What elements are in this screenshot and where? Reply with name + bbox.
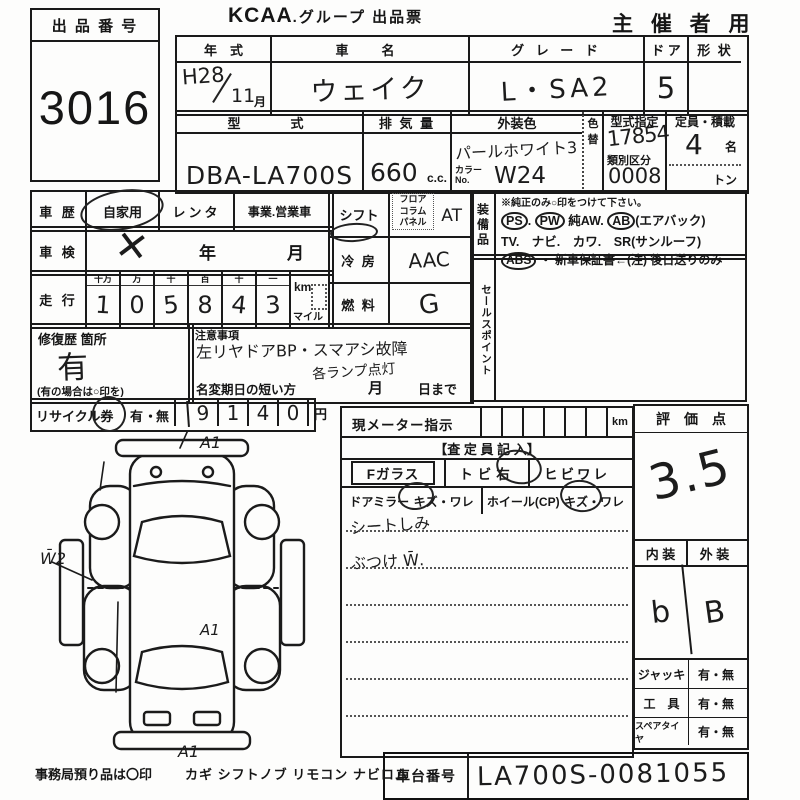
notes-line2: 各ランプ点灯 — [311, 358, 396, 384]
salespoint-box: セールスポイント — [470, 254, 747, 402]
meter-digit-box — [543, 408, 564, 436]
spare-tire-label: スペアタイヤ — [635, 718, 689, 745]
vehicle-table-band2: 型 式 DBA-LA700S 排 気 量 660 c.c. 外装色 パールホワイ… — [175, 110, 749, 194]
tool-label: 工 具 — [635, 689, 689, 717]
car-diagram — [25, 430, 335, 760]
recycle-unit: 円 — [307, 400, 332, 426]
hand-stroke-1 — [116, 602, 118, 692]
car-name-value: ウェイク — [271, 60, 469, 116]
mileage-digit: 4 — [221, 284, 257, 325]
equipment-ps-dot: . — [528, 214, 531, 228]
equipment-ps: PS — [501, 212, 528, 230]
rename-month-unit: 月 — [368, 377, 383, 398]
dotted-writing-line — [346, 678, 628, 680]
meter-digit-box — [522, 408, 543, 436]
capacity-divider — [669, 164, 741, 166]
shift-value: AT — [441, 206, 462, 226]
lot-number-value: 3016 — [32, 42, 158, 172]
year-month-unit: 月 — [254, 93, 266, 110]
color-no-label: カラーNo. — [455, 166, 483, 186]
mileage-label: 走 行 — [32, 272, 87, 327]
recycle-yes: 有 — [130, 406, 143, 425]
accessories-box: ジャッキ 有・無 工 具 有・無 スペアタイヤ 有・無 — [633, 658, 749, 750]
lot-number-label: 出 品 番 号 — [32, 10, 158, 42]
door-value: 5 — [645, 63, 687, 112]
form-title-text: .グループ 出品票 — [293, 9, 423, 26]
right-sill-panel — [281, 540, 304, 645]
fuel-label: 燃 料 — [330, 284, 390, 325]
mileage-digit: 1 — [86, 285, 121, 325]
name-header: 車 名 — [272, 37, 468, 63]
diagram-annotation-front: A1 — [200, 433, 221, 452]
recycle-row: リサイクル券 有 ・ 無 9 1 4 0 円 — [30, 398, 316, 432]
model-value: DBA-LA700S — [177, 134, 362, 193]
notes-box: 注意事項 左リヤドアBP・スマアシ故障 各ランプ点灯 名変期日の短い方 月 日ま… — [188, 323, 474, 404]
vehicle-table-band1: 年 式 H28 11 月 車 名 ウェイク グ レ ー ド L・SA2 ド ア … — [175, 35, 749, 116]
mileage-digit: 8 — [189, 286, 221, 324]
auction-sheet: 出 品 番 号 3016 KCAA.グループ 出品票 主 催 者 用 年 式 H… — [0, 0, 800, 800]
displacement-cell: 660 c.c. — [364, 134, 450, 190]
mileage-unit-mile: マイル — [293, 308, 323, 323]
shift-option-column: コラム — [393, 206, 433, 218]
spare-tire-value: 有・無 — [689, 718, 743, 745]
mileage-row: 走 行 十万 1 万 0 千 5 百 8 十 4 一 3 km マイル — [30, 270, 334, 329]
mileage-unit-checkbox — [311, 284, 327, 310]
tool-value: 有・無 — [689, 689, 743, 717]
digit-header: 十万 — [87, 272, 119, 286]
mileage-digit: 0 — [121, 286, 153, 324]
equipment-pw: PW — [535, 212, 565, 230]
mileage-digit: 5 — [153, 284, 189, 325]
door-header: ド ア — [645, 37, 687, 63]
equipment-box: 装備品 ※純正のみ○印をつけて下さい。 PS. PW 純AW. AB(エアバック… — [470, 190, 747, 260]
equipment-line1: PS. PW 純AW. AB(エアバック) — [501, 210, 741, 230]
brand-logo: KCAA — [228, 4, 293, 27]
wheel-rear-left — [85, 649, 119, 683]
exterior-header: 外 装 — [688, 541, 741, 565]
diagram-annotation-left: W̄2 — [40, 549, 66, 568]
footer-deposit-items: カギ シフトノブ リモコン ナビロム — [185, 764, 409, 783]
capacity-unit: 名 — [725, 138, 737, 155]
inspection-year-unit: 年 — [199, 239, 216, 264]
car-body — [130, 454, 234, 742]
wheel-front-left — [85, 505, 119, 539]
powertrain-box: シフト フロア コラム パネル AT 冷 房 AAC 燃 料 G — [328, 190, 474, 329]
dotted-writing-line — [346, 715, 628, 717]
color-header: 外装色 — [452, 112, 582, 134]
year-era-value: H28 — [181, 63, 225, 90]
dotted-writing-line — [346, 641, 628, 643]
wheel-rear-right — [245, 649, 279, 683]
type-designation-value: 17854 — [606, 121, 670, 151]
meter-digit-box — [564, 408, 585, 436]
lot-number-box: 出 品 番 号 3016 — [30, 8, 160, 182]
history-label: 車 歴 — [32, 192, 87, 230]
wheel-front-right — [245, 505, 279, 539]
equipment-instruction: ※純正のみ○印をつけて下さい。 — [501, 194, 741, 209]
exterior-score: B — [682, 564, 747, 661]
assessor-note-1: シートしみ — [349, 509, 430, 539]
dotted-writing-line — [346, 567, 628, 569]
meter-digit-box — [501, 408, 522, 436]
recycle-digit: 0 — [277, 400, 307, 426]
year-cell: H28 11 月 — [177, 63, 270, 112]
chassis-value: LA700S-0081055 — [469, 752, 748, 800]
meter-unit: km — [606, 408, 632, 436]
chassis-box: 車台番号 LA700S-0081055 — [383, 752, 749, 800]
recycle-digit: 4 — [247, 400, 277, 426]
recycle-no: 無 — [156, 406, 169, 425]
grade-value: L・SA2 — [469, 59, 644, 117]
equipment-aw: 純AW. — [568, 214, 603, 228]
assessor-box: 現メーター指示 km 【査 定 員 記 入】 Fガラス トビ右 ヒビワレ ドアミ… — [340, 406, 634, 758]
equipment-vertical-label: 装備品 — [472, 192, 496, 258]
meter-digit-box — [585, 408, 606, 436]
model-header: 型 式 — [177, 112, 362, 134]
dotted-writing-line — [346, 604, 628, 606]
load-unit: トン — [713, 171, 737, 188]
rename-deadline-label: 名変期日の短い方 — [196, 379, 296, 398]
equipment-ab: AB — [607, 212, 635, 230]
ac-label: 冷 房 — [330, 238, 390, 282]
dotted-writing-line — [346, 530, 628, 532]
jack-label: ジャッキ — [635, 660, 689, 688]
assessor-note-2: ぶつけ W̄. — [349, 546, 424, 574]
recycle-empty-cell — [174, 400, 187, 426]
meter-label: 現メーター指示 — [342, 408, 480, 436]
repair-box: 修復歴 箇所 有 (有の場合は○印を) — [30, 323, 194, 404]
history-business: 事業.営業車 — [235, 192, 324, 230]
shape-header: 形 状 — [689, 37, 741, 63]
evaluation-header: 評 価 点 — [635, 406, 747, 433]
capacity-value: 4 — [685, 128, 703, 161]
rename-day-suffix: 日まで — [418, 379, 457, 398]
digit-header: 百 — [189, 272, 221, 286]
year-header: 年 式 — [177, 37, 270, 63]
repair-value: 有 — [56, 341, 89, 387]
meter-digit-box — [480, 408, 501, 436]
front-glass-label: Fガラス — [351, 461, 435, 485]
equipment-airbag: (エアバック) — [635, 214, 705, 228]
evaluation-score-area: 3.5 — [635, 433, 747, 539]
inspection-label: 車 検 — [32, 228, 87, 274]
color-value: パールホワイト3 — [454, 134, 577, 164]
displacement-unit: c.c. — [427, 171, 447, 185]
color-cell: パールホワイト3 カラーNo. W24 — [452, 134, 582, 190]
mileage-unit-km: km — [294, 280, 311, 294]
shift-options: フロア コラム パネル — [392, 193, 434, 230]
inspection-cross-mark: ✕ — [112, 222, 152, 272]
shift-option-floor: フロア — [393, 194, 433, 206]
digit-header: 一 — [257, 272, 289, 286]
color-change-header: 色替 — [584, 112, 602, 147]
mileage-digit: 3 — [256, 285, 291, 325]
ac-value: AAC — [389, 236, 469, 284]
footer-office-note: 事務局預り品は〇印 — [35, 764, 152, 783]
shift-option-panel: パネル — [393, 217, 433, 229]
year-month-value: 11 — [231, 85, 255, 107]
digit-header: 万 — [121, 272, 153, 286]
capacity-header: 定員・積載 — [667, 112, 743, 130]
salespoint-content-empty — [496, 256, 741, 400]
assessor-header: 【査 定 員 記 入】 — [342, 438, 632, 460]
diagram-annotation-mid: A1 — [200, 621, 220, 639]
recycle-digit: 1 — [217, 400, 247, 426]
shape-value-empty — [689, 63, 741, 112]
displacement-value: 660 — [370, 158, 418, 187]
wheel-label: ホイール(CP) — [487, 493, 560, 510]
jack-value: 有・無 — [689, 660, 743, 688]
recycle-digit: 9 — [186, 399, 218, 427]
inspection-month-unit: 月 — [287, 239, 304, 264]
displacement-header: 排 気 量 — [364, 112, 450, 134]
form-title: KCAA.グループ 出品票 — [228, 4, 528, 30]
class-division-value: 0008 — [608, 164, 661, 188]
evaluation-box: 評 価 点 3.5 内 装 外 装 b B — [633, 404, 749, 660]
evaluation-score: 3.5 — [643, 438, 736, 512]
equipment-line2: TV. ナビ. カワ. SR(サンルーフ) — [501, 231, 741, 250]
interior-header: 内 装 — [635, 541, 688, 565]
history-rental: レンタ — [160, 192, 235, 230]
inspection-row: 車 検 ✕ 年 月 — [30, 226, 334, 276]
color-no-value: W24 — [494, 163, 546, 189]
diagram-annotation-rear: A1 — [178, 742, 199, 761]
fuel-value: G — [388, 279, 471, 330]
audience-label: 主 催 者 用 — [612, 8, 756, 38]
salespoint-vertical-label: セールスポイント — [472, 256, 496, 400]
